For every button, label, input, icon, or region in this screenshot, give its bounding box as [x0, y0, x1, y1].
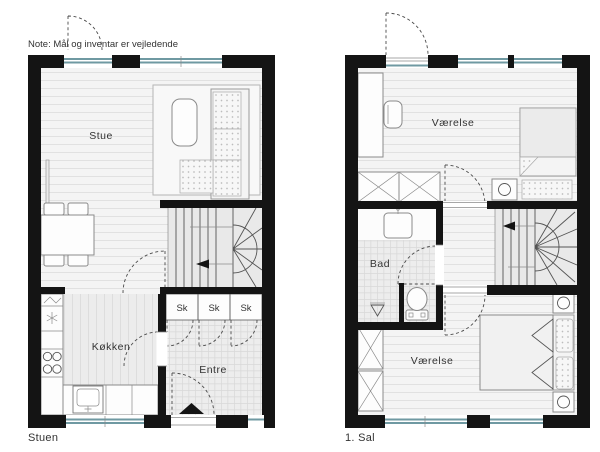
closet-label-1: Sk [176, 303, 187, 314]
plan-caption-first: 1. Sal [345, 432, 375, 444]
pillow [556, 319, 573, 352]
kitchen-appliance-column [41, 294, 63, 415]
closet-label-3: Sk [240, 303, 251, 314]
window-entry-sidelight [248, 415, 264, 428]
nightstand-bottom-2 [553, 392, 574, 412]
disclaimer-note: Note: Mål og inventar er vejledende [28, 39, 178, 50]
room-label-bedroom-top: Værelse [432, 117, 475, 129]
window-bottom-1 [385, 415, 467, 428]
window-top-2 [514, 55, 562, 68]
window-kitchen [66, 415, 144, 428]
closet-label-2: Sk [208, 303, 219, 314]
room-label-living: Stue [89, 130, 113, 142]
window-top-left [64, 55, 112, 68]
nightstand-top [492, 179, 517, 200]
coffee-table [172, 99, 197, 146]
window-top-1 [458, 55, 508, 68]
nightstand-bottom-1 [553, 293, 574, 313]
dining-set [41, 203, 94, 266]
floorplan-first-floor: Værelse Bad Værelse 1. Sal [345, 13, 590, 444]
room-label-bedroom-bottom: Værelse [411, 355, 454, 367]
balcony-door-opening [386, 55, 428, 68]
double-bed [480, 315, 574, 390]
floorplan-canvas: Stue Køkken Entre Sk Sk Sk Stuen [0, 0, 600, 452]
window-bottom-2 [490, 415, 543, 428]
floorplan-page: Stue Køkken Entre Sk Sk Sk Stuen [0, 0, 600, 452]
kitchen-sink-icon [73, 386, 103, 413]
wardrobe-top-room [358, 172, 440, 202]
room-label-kitchen: Køkken [92, 341, 131, 353]
desk-chair [384, 101, 402, 128]
room-label-entry: Entre [199, 364, 227, 376]
single-bed [520, 108, 576, 176]
pillow [556, 357, 573, 389]
toilet-icon [406, 288, 428, 321]
kitchen-counter [63, 385, 158, 415]
floorplan-ground-floor: Stue Køkken Entre Sk Sk Sk Stuen [28, 16, 275, 444]
bedside-mat [522, 180, 572, 199]
wardrobe-bottom-room [358, 327, 383, 411]
door-swing-balcony [386, 13, 428, 55]
plan-caption-ground: Stuen [28, 432, 58, 444]
room-label-bathroom: Bad [370, 258, 390, 270]
entrance-door-opening [171, 415, 216, 428]
desk [358, 73, 383, 157]
window-top-wide [140, 55, 222, 68]
